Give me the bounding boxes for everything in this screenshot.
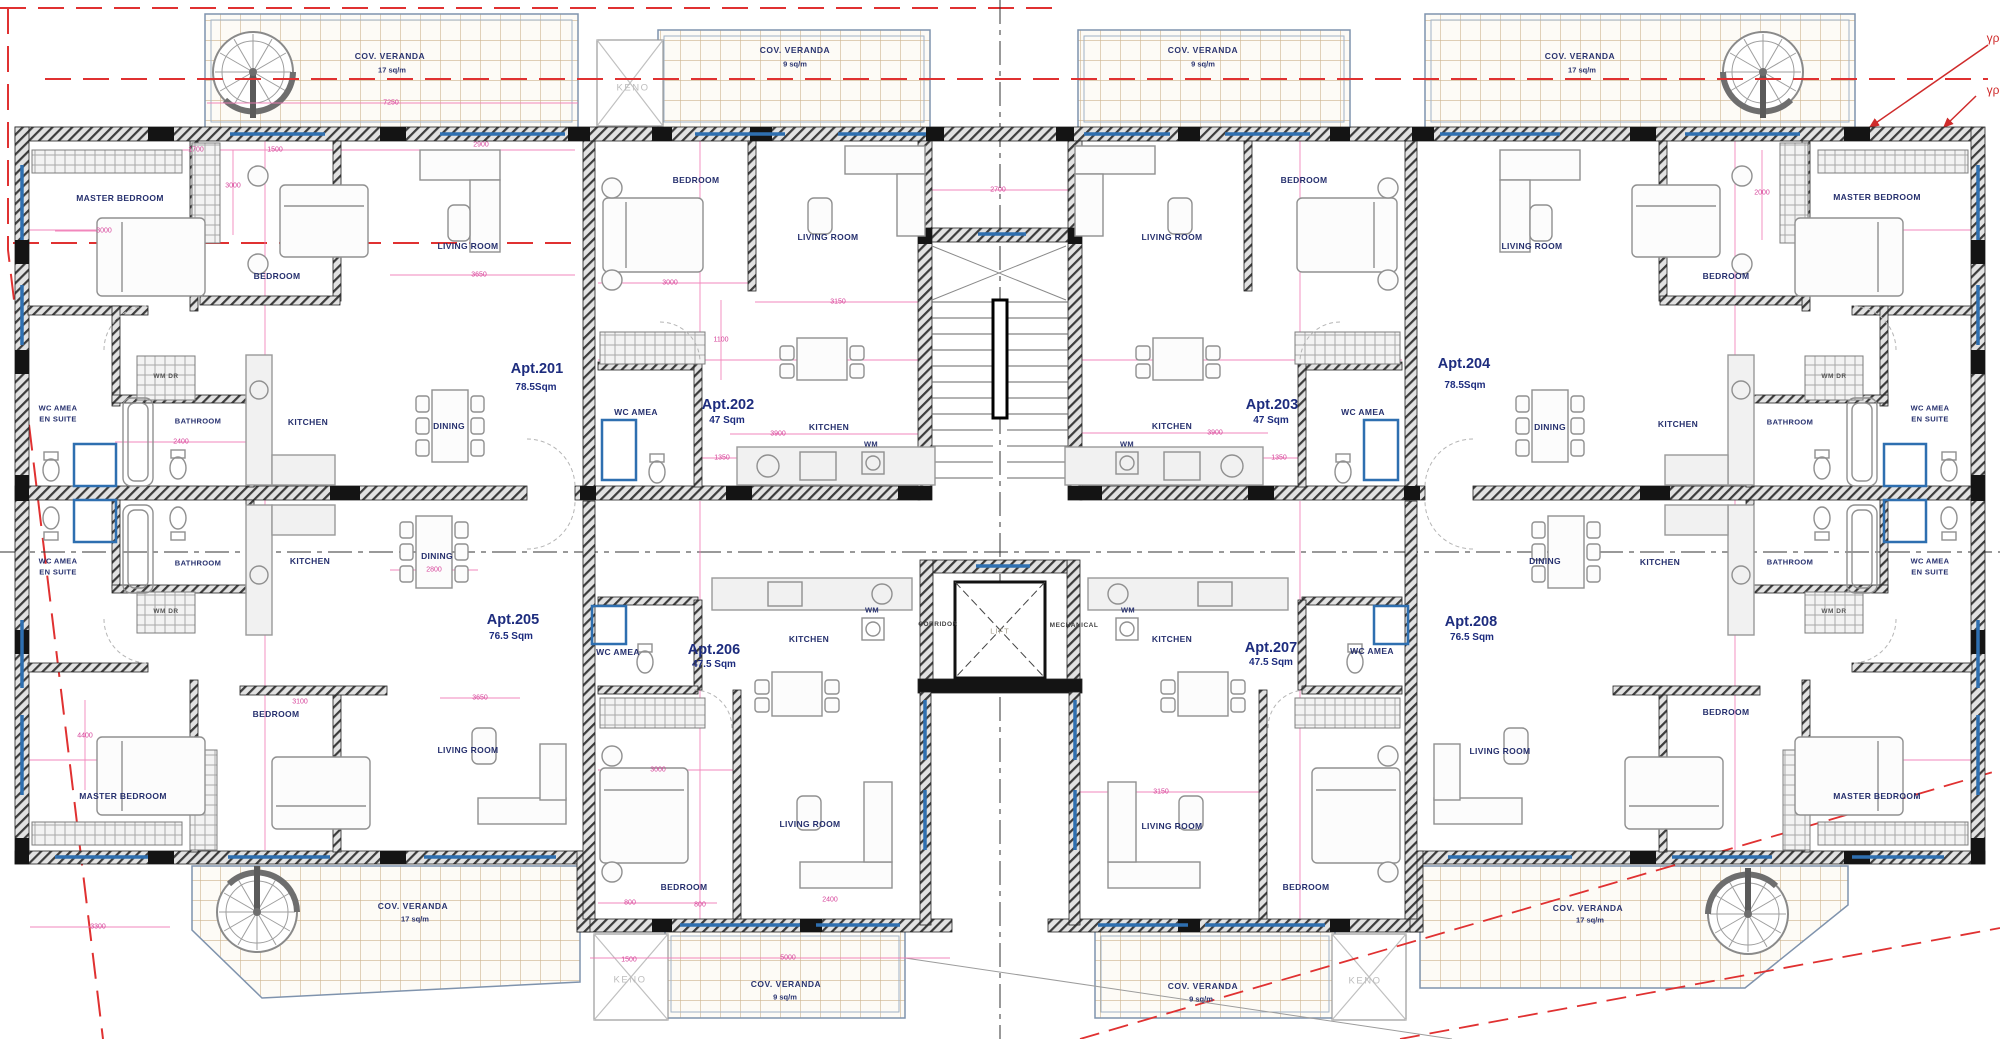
- apt-206-label: Apt.206: [688, 643, 740, 658]
- dimension-text: 800: [694, 902, 706, 909]
- room-label-wc-amea-ensuite: WC AMEA: [39, 557, 78, 565]
- room-label-living-room: LIVING ROOM: [780, 820, 841, 829]
- appliance-label-wm: WM: [1121, 606, 1135, 614]
- apt-205-area: 76.5 Sqm: [489, 632, 533, 642]
- dimension-text: 1350: [714, 455, 730, 462]
- veranda-label: COV. VERANDA: [355, 52, 425, 61]
- room-label-dining: DINING: [421, 552, 453, 561]
- room-label-bathroom: BATHROOM: [175, 417, 221, 425]
- dimension-text: 2700: [990, 187, 1006, 194]
- greek-annotation: γραμ: [1987, 32, 2000, 44]
- veranda-area: 9 sq/m: [773, 993, 797, 1001]
- veranda-area: 9 sq/m: [1189, 995, 1213, 1003]
- room-label-kitchen: KITCHEN: [1640, 558, 1680, 567]
- dimension-text: 3100: [292, 699, 308, 706]
- dimension-text: 3000: [225, 183, 241, 190]
- veranda-label: COV. VERANDA: [378, 902, 448, 911]
- room-label-bedroom: BEDROOM: [254, 272, 301, 281]
- dimension-text: 2000: [1754, 190, 1770, 197]
- room-label-living-room: LIVING ROOM: [1142, 822, 1203, 831]
- appliance-label-wm: WM: [865, 606, 879, 614]
- veranda-area: 9 sq/m: [1191, 60, 1215, 68]
- dimension-text: 1700: [188, 147, 204, 154]
- room-label-bedroom: BEDROOM: [1281, 176, 1328, 185]
- mechanical-label: MECHANICAL: [1050, 623, 1099, 630]
- room-label-kitchen: KITCHEN: [1152, 422, 1192, 431]
- apt-208-area: 76.5 Sqm: [1450, 633, 1494, 643]
- room-label-bedroom: BEDROOM: [253, 710, 300, 719]
- apt-205-label: Apt.205: [487, 613, 539, 628]
- room-label-kitchen: KITCHEN: [290, 557, 330, 566]
- apt-202-label: Apt.202: [702, 398, 754, 413]
- room-label-kitchen: KITCHEN: [1658, 420, 1698, 429]
- dimension-text: 3650: [471, 272, 487, 279]
- apt-207-area: 47.5 Sqm: [1249, 658, 1293, 668]
- apt-206-area: 47.5 Sqm: [692, 660, 736, 670]
- void-label-keno: KENO: [614, 975, 647, 985]
- room-label-living-room: LIVING ROOM: [1502, 242, 1563, 251]
- dimension-text: 3900: [1207, 430, 1223, 437]
- dimension-text: 3300: [90, 924, 106, 931]
- room-label-ensuite: EN SUITE: [1911, 415, 1948, 423]
- room-label-bedroom: BEDROOM: [1703, 272, 1750, 281]
- room-label-living-room: LIVING ROOM: [798, 233, 859, 242]
- room-label-wc-amea-ensuite: WC AMEA: [1911, 557, 1950, 565]
- greek-annotation: γραμ: [1987, 84, 2000, 96]
- room-label-bedroom: BEDROOM: [1283, 883, 1330, 892]
- veranda-label: COV. VERANDA: [1168, 982, 1238, 991]
- dimension-text: 7250: [383, 100, 399, 107]
- dimension-text: 3000: [96, 228, 112, 235]
- room-label-kitchen: KITCHEN: [288, 418, 328, 427]
- room-label-wc-amea-ensuite: WC AMEA: [39, 404, 78, 412]
- room-label-dining: DINING: [1529, 557, 1561, 566]
- apt-203-label: Apt.203: [1246, 398, 1298, 413]
- room-label-dining: DINING: [1534, 423, 1566, 432]
- apt-202-area: 47 Sqm: [709, 416, 745, 426]
- room-label-kitchen: KITCHEN: [1152, 635, 1192, 644]
- room-label-ensuite: EN SUITE: [39, 415, 76, 423]
- closet-label-wm-dr: WM DR: [1821, 609, 1846, 616]
- dimension-text: 3900: [770, 431, 786, 438]
- dimension-text: 3150: [830, 299, 846, 306]
- apt-201-area: 78.5Sqm: [515, 383, 556, 393]
- apt-208-label: Apt.208: [1445, 615, 1497, 630]
- dimension-text: 2800: [426, 567, 442, 574]
- room-label-master-bedroom: MASTER BEDROOM: [1833, 193, 1921, 202]
- appliance-label-wm: WM: [864, 440, 878, 448]
- room-label-living-room: LIVING ROOM: [438, 242, 499, 251]
- void-label-keno: KENO: [1349, 976, 1382, 986]
- dimension-text: 2400: [822, 897, 838, 904]
- room-label-bathroom: BATHROOM: [1767, 418, 1813, 426]
- room-label-bedroom: BEDROOM: [673, 176, 720, 185]
- room-label-living-room: LIVING ROOM: [1470, 747, 1531, 756]
- closet-label-wm-dr: WM DR: [153, 609, 178, 616]
- room-label-wc-amea-ensuite: WC AMEA: [1911, 404, 1950, 412]
- veranda-area: 17 sq/m: [1568, 66, 1596, 74]
- room-label-bathroom: BATHROOM: [1767, 558, 1813, 566]
- dimension-text: 2400: [173, 439, 189, 446]
- room-label-dining: DINING: [433, 422, 465, 431]
- dimension-text: 800: [624, 900, 636, 907]
- apt-203-area: 47 Sqm: [1253, 416, 1289, 426]
- floor-plan-drawing: [0, 0, 2000, 1039]
- room-label-wc-amea: WC AMEA: [614, 408, 658, 417]
- corridor-label: CORRIDOR: [918, 622, 957, 629]
- room-label-living-room: LIVING ROOM: [1142, 233, 1203, 242]
- void-label-keno: KENO: [617, 83, 650, 93]
- room-label-kitchen: KITCHEN: [809, 423, 849, 432]
- apt-207-label: Apt.207: [1245, 641, 1297, 656]
- room-label-bathroom: BATHROOM: [175, 559, 221, 567]
- apt-204-label: Apt.204: [1438, 357, 1490, 372]
- dimension-text: 5000: [780, 955, 796, 962]
- room-label-master-bedroom: MASTER BEDROOM: [79, 792, 167, 801]
- room-label-bedroom: BEDROOM: [1703, 708, 1750, 717]
- room-label-living-room: LIVING ROOM: [438, 746, 499, 755]
- room-label-wc-amea: WC AMEA: [596, 648, 640, 657]
- veranda-label: COV. VERANDA: [751, 980, 821, 989]
- veranda-label: COV. VERANDA: [1545, 52, 1615, 61]
- room-label-wc-amea: WC AMEA: [1350, 647, 1394, 656]
- dimension-text: 4400: [77, 733, 93, 740]
- veranda-area: 9 sq/m: [783, 60, 807, 68]
- dimension-text: 3650: [472, 695, 488, 702]
- room-label-ensuite: EN SUITE: [1911, 568, 1948, 576]
- veranda-label: COV. VERANDA: [1168, 46, 1238, 55]
- dimension-text: 3000: [662, 280, 678, 287]
- veranda-area: 17 sq/m: [378, 66, 406, 74]
- dimension-text: 2900: [473, 142, 489, 149]
- dimension-text: 1100: [713, 337, 728, 344]
- room-label-master-bedroom: MASTER BEDROOM: [76, 194, 164, 203]
- veranda-label: COV. VERANDA: [760, 46, 830, 55]
- veranda-area: 17 sq/m: [1576, 916, 1604, 924]
- veranda-area: 17 sq/m: [401, 915, 429, 923]
- closet-label-wm-dr: WM DR: [153, 374, 178, 381]
- room-label-bedroom: BEDROOM: [661, 883, 708, 892]
- dimension-text: 1500: [267, 147, 283, 154]
- room-label-wc-amea: WC AMEA: [1341, 408, 1385, 417]
- dimension-text: 3150: [1153, 789, 1169, 796]
- apt-204-area: 78.5Sqm: [1444, 381, 1485, 391]
- room-label-kitchen: KITCHEN: [789, 635, 829, 644]
- closet-label-wm-dr: WM DR: [1821, 374, 1846, 381]
- room-label-ensuite: EN SUITE: [39, 568, 76, 576]
- room-label-master-bedroom: MASTER BEDROOM: [1833, 792, 1921, 801]
- dimension-text: 3000: [650, 767, 666, 774]
- veranda-label: COV. VERANDA: [1553, 904, 1623, 913]
- dimension-text: 1350: [1271, 455, 1287, 462]
- lift-label: LIFT: [990, 627, 1009, 635]
- dimension-text: 1500: [621, 957, 637, 964]
- appliance-label-wm: WM: [1120, 440, 1134, 448]
- floor-plan-page: Apt.201 78.5Sqm Apt.202 47 Sqm Apt.203 4…: [0, 0, 2000, 1039]
- apt-201-label: Apt.201: [511, 362, 563, 377]
